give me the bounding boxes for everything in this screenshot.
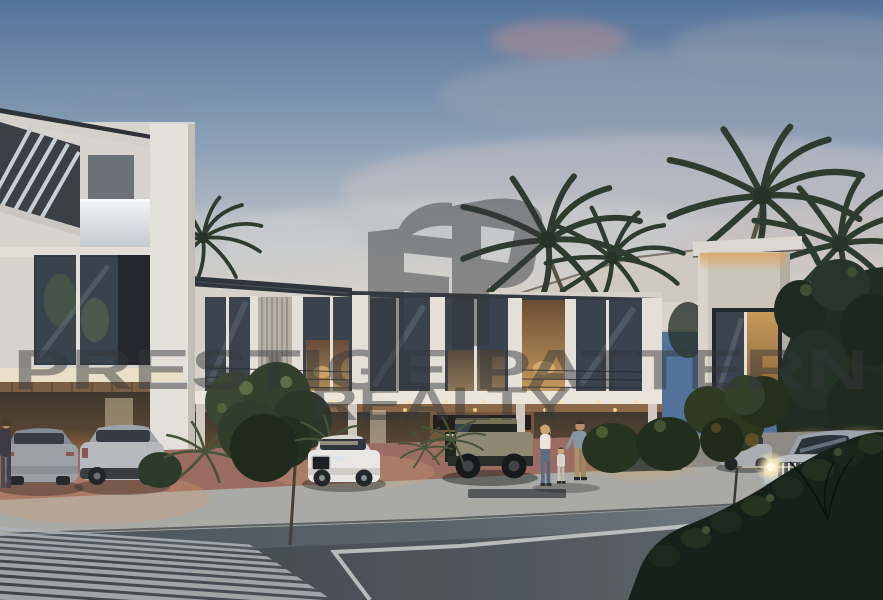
pink-cloud	[490, 20, 630, 60]
pedestrian-left-edge	[0, 419, 11, 488]
grille	[312, 456, 330, 470]
wheel	[10, 476, 24, 485]
under-canopy-glow	[700, 253, 786, 271]
listing-photo: PRESTIGE PATTERN REALTY	[0, 0, 883, 600]
taillight	[82, 448, 88, 458]
wheel	[56, 476, 70, 485]
taillight	[66, 452, 74, 456]
headlight	[334, 456, 345, 461]
left-townhouse	[0, 108, 195, 481]
watermark-line2: REALTY	[310, 377, 572, 430]
